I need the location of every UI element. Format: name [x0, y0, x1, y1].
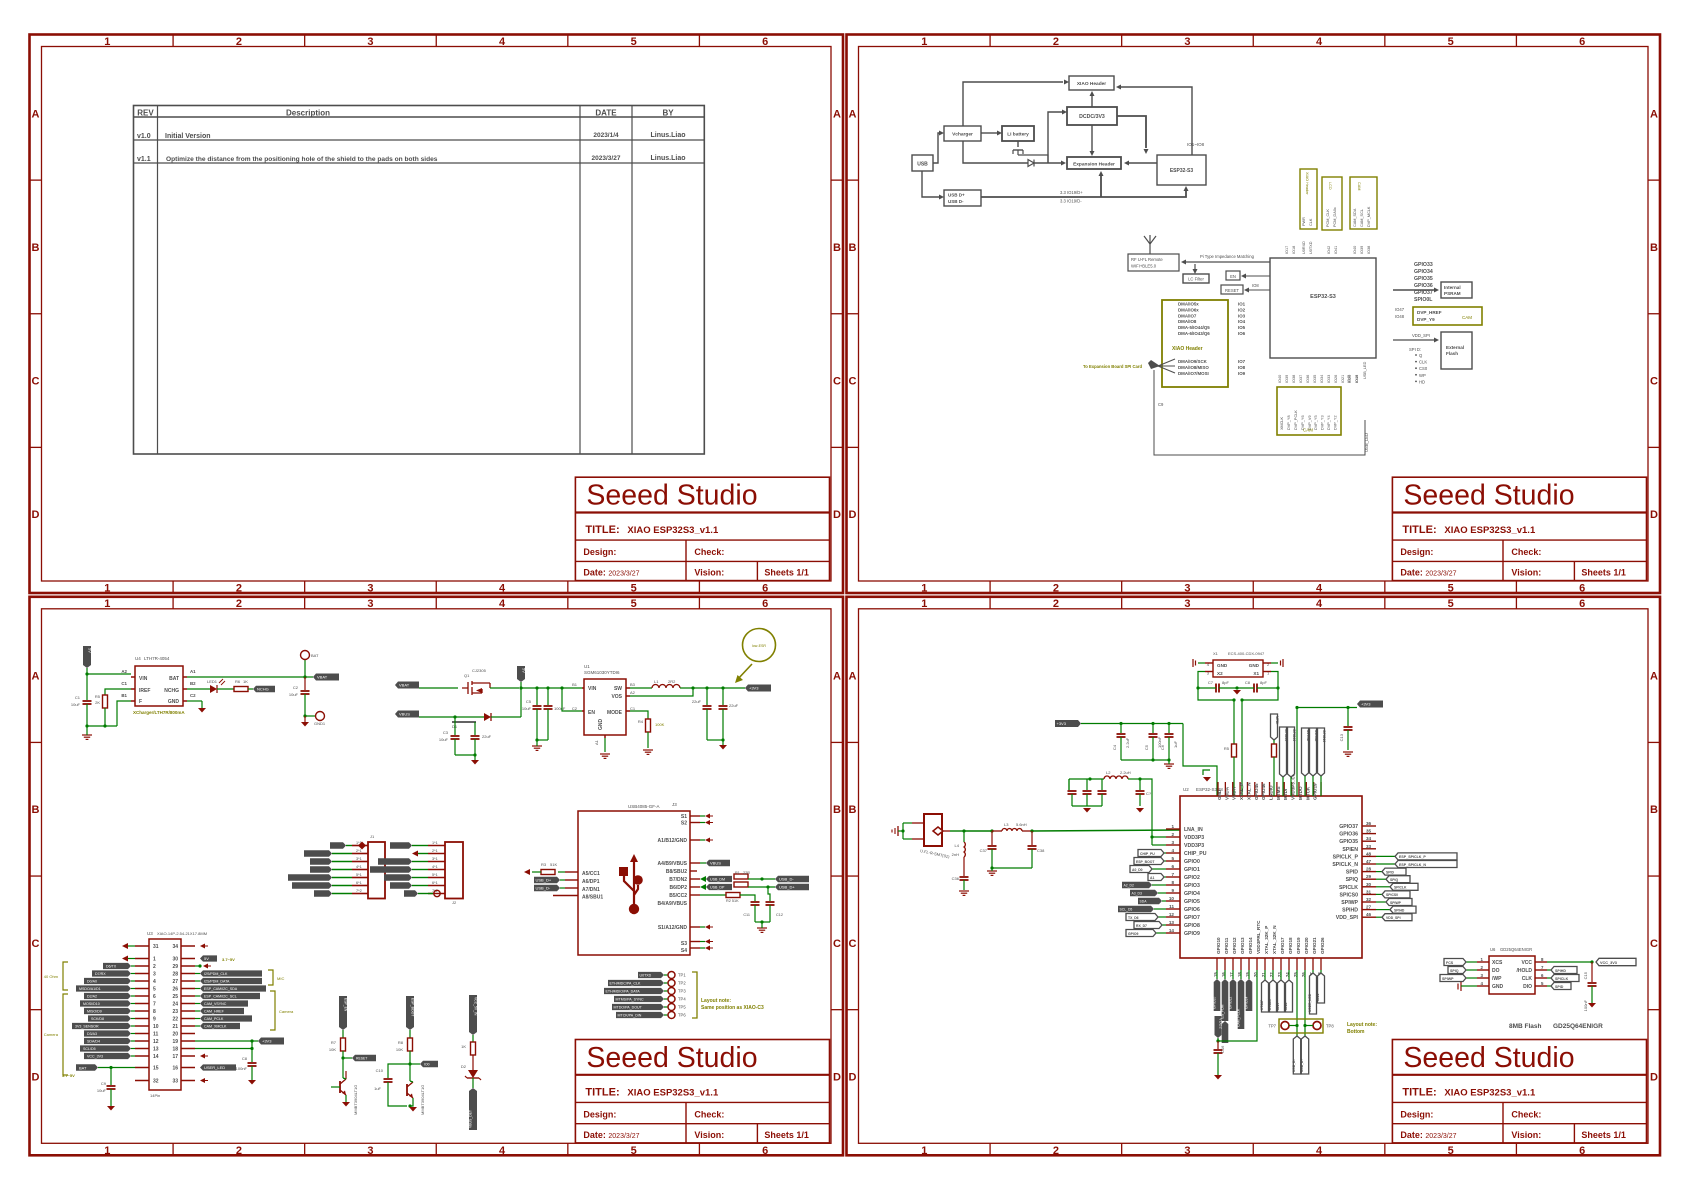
svg-text:DVP_PCLK: DVP_PCLK — [1294, 410, 1298, 430]
svg-text:XCS: XCS — [1492, 960, 1503, 966]
svg-text:GPIO9: GPIO9 — [1128, 932, 1138, 936]
svg-text:30: 30 — [172, 957, 178, 963]
svg-text:DMA/IO8: DMA/IO8 — [1178, 319, 1197, 324]
svg-text:SPI D:: SPI D: — [1409, 347, 1421, 352]
svg-text:5V: 5V — [522, 668, 527, 673]
svg-text:USB_D-: USB_D- — [779, 877, 794, 882]
svg-text:SDA: SDA — [1140, 900, 1148, 904]
svg-text:35: 35 — [1366, 829, 1372, 834]
svg-text:SGM61030YTDI6: SGM61030YTDI6 — [584, 670, 620, 675]
svg-text:13: 13 — [1169, 920, 1175, 925]
svg-text:XT32P: XT32P — [1260, 999, 1264, 1010]
svg-text:L4: L4 — [955, 843, 960, 848]
svg-text:RESET: RESET — [356, 1057, 367, 1061]
svg-text:GPIO19: GPIO19 — [1296, 937, 1301, 954]
svg-text:CS0: CS0 — [1419, 366, 1428, 371]
svg-text:33: 33 — [172, 1079, 178, 1085]
svg-text:GPIO36: GPIO36 — [1339, 832, 1358, 838]
svg-text:31: 31 — [153, 944, 159, 950]
svg-text:CAM_HREF: CAM_HREF — [204, 1010, 225, 1014]
svg-text:GPIO37: GPIO37 — [1414, 290, 1433, 296]
svg-text:VDDA: VDDA — [1224, 786, 1229, 800]
svg-text:5.6nH: 5.6nH — [1016, 822, 1027, 827]
svg-text:8MB Flash: 8MB Flash — [1509, 1023, 1542, 1030]
svg-text:3: 3 — [1171, 840, 1174, 845]
svg-text:GPIO3: GPIO3 — [1184, 883, 1200, 889]
svg-text:J3: J3 — [672, 802, 677, 807]
svg-text:X1: X1 — [1253, 671, 1259, 676]
svg-text:A1: A1 — [594, 739, 599, 745]
svg-text:CHIP_PU: CHIP_PU — [1184, 851, 1207, 857]
svg-text:GND: GND — [1249, 663, 1260, 668]
svg-text:GPIO46: GPIO46 — [1261, 783, 1266, 800]
svg-text:DVP_Y2: DVP_Y2 — [1334, 415, 1338, 430]
svg-text:SPID: SPID — [1346, 870, 1358, 876]
svg-text:46: 46 — [1366, 912, 1372, 917]
svg-text:GPIO1: GPIO1 — [1184, 867, 1200, 873]
svg-text:EN: EN — [1230, 274, 1236, 279]
svg-text:TP3: TP3 — [678, 989, 686, 994]
svg-text:VCC: VCC — [1521, 960, 1532, 966]
svg-text:D2/A2: D2/A2 — [87, 995, 97, 999]
svg-text:34: 34 — [172, 944, 178, 950]
svg-text:A1/B12/GND: A1/B12/GND — [658, 838, 688, 844]
svg-text:RX_D7: RX_D7 — [1136, 924, 1147, 928]
svg-text:XTAL_32K_N: XTAL_32K_N — [1272, 925, 1277, 954]
svg-text:VDD2: VDD2 — [1219, 1018, 1224, 1029]
svg-text:NCHG: NCHG — [164, 688, 179, 694]
svg-text:SW: SW — [614, 686, 622, 692]
svg-text:A6/DP1: A6/DP1 — [582, 879, 600, 885]
svg-text:10uF: 10uF — [71, 702, 81, 707]
svg-text:C?: C? — [1146, 791, 1152, 796]
svg-text:MODE: MODE — [607, 710, 623, 716]
svg-text:CAM_PCLK: CAM_PCLK — [1237, 1008, 1241, 1027]
svg-text:MISO/D9: MISO/D9 — [87, 1010, 102, 1014]
svg-text:CAM_VSYNC: CAM_VSYNC — [204, 1002, 227, 1006]
svg-text:2*1: 2*1 — [356, 849, 362, 853]
svg-text:1K: 1K — [243, 679, 248, 684]
svg-text:DMA/IO6x: DMA/IO6x — [1178, 307, 1199, 312]
svg-text:VBAT: VBAT — [317, 675, 328, 680]
svg-text:C1: C1 — [630, 706, 636, 711]
svg-text:47: 47 — [1366, 859, 1372, 864]
svg-text:22uF: 22uF — [482, 734, 492, 739]
svg-text:DVP_Y9: DVP_Y9 — [1417, 317, 1435, 322]
svg-text:SPICLK_P: SPICLK_P — [1333, 854, 1359, 860]
svg-text:GPIO35: GPIO35 — [1414, 276, 1433, 282]
svg-text:S1/A12/GND: S1/A12/GND — [658, 925, 688, 931]
svg-text:33: 33 — [1366, 844, 1372, 849]
svg-text:Camera: Camera — [44, 1032, 59, 1037]
svg-text:R6: R6 — [235, 679, 241, 684]
svg-text:BAT: BAT — [79, 1066, 87, 1071]
svg-text:SPID: SPID — [1386, 870, 1394, 874]
svg-text:DVP_Y8: DVP_Y8 — [1287, 415, 1291, 430]
svg-text:13: 13 — [153, 1047, 159, 1053]
svg-text:USB D+: USB D+ — [948, 193, 965, 198]
svg-text:GPIO45: GPIO45 — [1254, 783, 1259, 800]
svg-text:USB4085-GF-A: USB4085-GF-A — [628, 804, 660, 809]
svg-text:Internal: Internal — [1444, 285, 1461, 290]
svg-text:U1: U1 — [584, 664, 590, 669]
svg-text:XMCLK: XMCLK — [1280, 416, 1284, 430]
svg-text:100nF: 100nF — [554, 706, 566, 711]
svg-text:10: 10 — [1169, 896, 1175, 901]
svg-text:IO18: IO18 — [1292, 246, 1296, 254]
svg-text:U.FL-R-SMT(01): U.FL-R-SMT(01) — [920, 848, 951, 859]
svg-text:SPICLK_N: SPICLK_N — [1332, 862, 1358, 868]
svg-text:S3: S3 — [681, 941, 687, 947]
svg-text:GPIO21: GPIO21 — [1312, 937, 1317, 954]
svg-text:3*1: 3*1 — [356, 857, 362, 861]
svg-text:40 Ohm: 40 Ohm — [44, 974, 59, 979]
svg-text:ESP_CAM/I2C_SDA: ESP_CAM/I2C_SDA — [204, 987, 238, 991]
svg-text:VDDA: VDDA — [1232, 786, 1237, 800]
svg-text:U2: U2 — [1183, 787, 1189, 792]
svg-text:CLK: CLK — [1522, 976, 1533, 982]
svg-text:USB_D-: USB_D- — [536, 886, 551, 891]
svg-text:B7/DN2: B7/DN2 — [669, 877, 687, 883]
svg-text:IREF: IREF — [139, 688, 150, 694]
svg-text:NCHG: NCHG — [257, 687, 269, 692]
svg-text:B5/CC2: B5/CC2 — [669, 893, 687, 899]
svg-text:9: 9 — [1171, 888, 1174, 893]
svg-text:GPIO11: GPIO11 — [1224, 937, 1229, 954]
svg-text:C2: C2 — [293, 685, 299, 690]
svg-text:MSDO/A1/D1: MSDO/A1/D1 — [79, 987, 101, 991]
svg-text:A3_D3: A3_D3 — [1132, 892, 1142, 896]
svg-text:GPIO6: GPIO6 — [1184, 907, 1200, 913]
svg-text:GPIO7: GPIO7 — [1184, 915, 1200, 921]
svg-text:VDD_SPI: VDD_SPI — [1412, 333, 1430, 338]
svg-text:IO40: IO40 — [1278, 375, 1282, 383]
svg-text:DMA/IO8/MISO: DMA/IO8/MISO — [1178, 365, 1209, 370]
svg-text:IO17: IO17 — [1276, 1003, 1280, 1010]
svg-text:7: 7 — [1541, 965, 1544, 970]
svg-text:5: 5 — [153, 987, 156, 993]
svg-text:EN: EN — [588, 710, 595, 716]
svg-text:3*1: 3*1 — [432, 857, 438, 861]
svg-text:5V: 5V — [88, 648, 93, 653]
svg-text:1: 1 — [1171, 824, 1174, 829]
svg-text:LNA_IN: LNA_IN — [1184, 827, 1203, 833]
svg-text:Optimize the distance from the: Optimize the distance from the positioni… — [166, 156, 438, 163]
svg-text:C1: C1 — [75, 695, 81, 700]
svg-text:SPIHD: SPIHD — [1342, 908, 1358, 914]
svg-text:3.7~5V: 3.7~5V — [222, 957, 235, 962]
svg-text:MTCK/PA_DIN: MTCK/PA_DIN — [618, 1014, 642, 1018]
svg-text:VOS: VOS — [611, 694, 622, 700]
svg-text:IO33: IO33 — [1327, 375, 1331, 383]
svg-text:IO48: IO48 — [1395, 314, 1405, 319]
svg-text:ESP_SPICLK_N: ESP_SPICLK_N — [1399, 863, 1426, 867]
svg-text:SPIQ: SPIQ — [1390, 878, 1398, 882]
svg-text:TP2: TP2 — [678, 981, 686, 986]
svg-text:XT32N: XT32N — [1268, 999, 1272, 1010]
svg-text:CAM_XMCLK: CAM_XMCLK — [204, 1025, 227, 1029]
svg-text:DO: DO — [1492, 968, 1500, 974]
svg-text:/WP: /WP — [1492, 976, 1502, 982]
svg-text:6: 6 — [1541, 973, 1544, 978]
svg-text:IO9: IO9 — [1238, 371, 1246, 376]
svg-text:DVP_HREF: DVP_HREF — [1417, 310, 1442, 315]
svg-text:GPIO2: GPIO2 — [1184, 875, 1200, 881]
svg-text:IO41: IO41 — [1334, 246, 1338, 254]
svg-text:+3V3: +3V3 — [262, 1039, 272, 1044]
svg-text:TX_D6: TX_D6 — [1128, 916, 1139, 920]
svg-text:MTDO: MTDO — [1298, 786, 1303, 800]
svg-text:DVP_Y3: DVP_Y3 — [1321, 415, 1325, 430]
svg-text:BY: BY — [662, 109, 674, 118]
svg-text:TP5: TP5 — [678, 1005, 686, 1010]
svg-text:R5: R5 — [1224, 746, 1230, 751]
svg-text:2.2uF: 2.2uF — [1125, 737, 1130, 748]
svg-text:MIC: MIC — [277, 976, 284, 981]
svg-text:SPIHD: SPIHD — [1394, 908, 1405, 912]
svg-text:USB D-: USB D- — [948, 199, 964, 204]
svg-text:USB_DP: USB_DP — [710, 886, 725, 890]
svg-text:CAM_SDA: CAM_SDA — [1353, 208, 1357, 227]
svg-text:SPIWP: SPIWP — [1341, 900, 1358, 906]
svg-text:R3: R3 — [541, 862, 547, 867]
svg-text:J1: J1 — [370, 834, 375, 839]
svg-text:4: 4 — [153, 979, 156, 985]
svg-text:VCC_3V3: VCC_3V3 — [1600, 961, 1617, 965]
svg-text:3.3 IO19/D-: 3.3 IO19/D- — [1060, 199, 1082, 204]
svg-text:C13: C13 — [1339, 733, 1344, 741]
svg-text:F: F — [139, 699, 142, 705]
svg-text:ESP32-S3: ESP32-S3 — [1310, 294, 1336, 300]
svg-text:ETH/MDIO/PA_DATA: ETH/MDIO/PA_DATA — [606, 990, 641, 994]
svg-text:LI battery: LI battery — [1007, 132, 1029, 138]
svg-text:B1: B1 — [572, 682, 578, 687]
svg-text:B8/SBU2: B8/SBU2 — [666, 869, 687, 875]
svg-text:VIN: VIN — [588, 686, 597, 692]
svg-text:GPIO17: GPIO17 — [1280, 937, 1285, 954]
svg-text:IO46: IO46 — [1355, 375, 1359, 383]
svg-text:IO39: IO39 — [1285, 375, 1289, 383]
svg-text:SPICLK: SPICLK — [1339, 885, 1358, 891]
svg-text:A2: A2 — [630, 690, 636, 695]
svg-text:C37: C37 — [980, 848, 988, 853]
svg-text:IO18: IO18 — [1284, 1003, 1288, 1010]
svg-text:D6/TX: D6/TX — [106, 965, 117, 969]
svg-text:IO47: IO47 — [1395, 307, 1405, 312]
svg-text:1: 1 — [153, 957, 156, 963]
svg-text:2: 2 — [1481, 965, 1484, 970]
svg-text:2023/3/27: 2023/3/27 — [592, 155, 621, 162]
svg-text:S1: S1 — [681, 814, 687, 820]
svg-text:IO0: IO0 — [424, 1063, 430, 1067]
svg-text:2K: 2K — [95, 700, 100, 705]
svg-text:IO7: IO7 — [1238, 359, 1246, 364]
svg-text:MTDI: MTDI — [1275, 716, 1279, 724]
svg-text:2: 2 — [153, 964, 156, 970]
svg-text:J2: J2 — [452, 900, 457, 905]
svg-text:48: 48 — [1366, 851, 1372, 856]
svg-text:3.7~5V: 3.7~5V — [62, 1073, 75, 1078]
svg-text:SPICLK: SPICLK — [1394, 886, 1407, 890]
svg-text:SPIO0L: SPIO0L — [1414, 297, 1433, 303]
svg-text:GND: GND — [598, 719, 604, 731]
svg-text:36: 36 — [1366, 821, 1372, 826]
svg-text:R1: R1 — [735, 871, 740, 875]
svg-text:A2_D2: A2_D2 — [1124, 884, 1134, 888]
svg-text:IO26: IO26 — [1334, 375, 1338, 383]
svg-text:6: 6 — [1171, 864, 1174, 869]
svg-text:Initial Version: Initial Version — [165, 133, 211, 140]
svg-text:IO3: IO3 — [1238, 313, 1246, 318]
svg-text:VBUS_DET: VBUS_DET — [469, 1110, 473, 1128]
svg-text:GPIO14: GPIO14 — [1245, 997, 1249, 1009]
svg-text:23: 23 — [172, 1009, 178, 1015]
svg-text:21: 21 — [172, 1024, 178, 1030]
svg-text:GPIO35: GPIO35 — [1339, 839, 1358, 845]
svg-text:32: 32 — [153, 1079, 159, 1085]
svg-text:C12: C12 — [776, 913, 783, 917]
svg-text:27: 27 — [172, 979, 178, 985]
svg-text:low-ESR: low-ESR — [752, 644, 766, 648]
svg-text:IO40: IO40 — [1353, 246, 1357, 254]
svg-text:B2: B2 — [190, 681, 196, 686]
svg-text:CHIP_PU: CHIP_PU — [1140, 852, 1155, 856]
svg-text:5: 5 — [1541, 981, 1544, 986]
svg-text:+3V3: +3V3 — [1361, 702, 1371, 707]
svg-text:IO39: IO39 — [1360, 246, 1364, 254]
svg-text:C5: C5 — [1144, 744, 1149, 750]
svg-text:7: 7 — [1171, 872, 1174, 877]
svg-text:R5: R5 — [95, 694, 101, 699]
svg-text:B6/DP2: B6/DP2 — [669, 885, 687, 891]
svg-text:B4/A9/VBUS: B4/A9/VBUS — [658, 901, 688, 907]
svg-text:XIAO Header: XIAO Header — [1305, 172, 1309, 195]
svg-text:TP8: TP8 — [1326, 1024, 1334, 1029]
svg-text:IO45: IO45 — [1347, 375, 1351, 383]
svg-text:26: 26 — [172, 987, 178, 993]
svg-text:GPIO33: GPIO33 — [1414, 262, 1433, 268]
svg-text:TP1: TP1 — [678, 973, 686, 978]
svg-text:Same position as XIAO-C3: Same position as XIAO-C3 — [701, 1005, 764, 1011]
svg-text:DCDC/3V3: DCDC/3V3 — [1079, 114, 1105, 120]
svg-text:USB_DM: USB_DM — [710, 878, 725, 882]
svg-text:LED1: LED1 — [207, 679, 218, 684]
svg-text:12: 12 — [153, 1039, 159, 1045]
svg-text:I2S/PDM_CLK: I2S/PDM_CLK — [204, 972, 228, 976]
svg-text:10K: 10K — [396, 1047, 403, 1052]
svg-text:GPIO26: GPIO26 — [1320, 937, 1325, 954]
svg-text:14: 14 — [153, 1054, 159, 1060]
svg-text:51K: 51K — [550, 862, 557, 867]
svg-text:5V: 5V — [204, 956, 209, 961]
svg-text:30: 30 — [1366, 882, 1372, 887]
svg-text:3V3_SENSOR: 3V3_SENSOR — [75, 1025, 99, 1029]
svg-text:RF U-FL Remote: RF U-FL Remote — [1131, 257, 1163, 262]
svg-text:USER_LED: USER_LED — [204, 1065, 225, 1070]
svg-text:16: 16 — [172, 1066, 178, 1072]
svg-text:22uF: 22uF — [692, 699, 702, 704]
svg-text:X1: X1 — [1213, 651, 1219, 656]
svg-text:DMA-6/IO43/Q6: DMA-6/IO43/Q6 — [1178, 331, 1210, 336]
svg-text:IO38: IO38 — [1367, 246, 1371, 254]
svg-text:IO17: IO17 — [1285, 246, 1289, 254]
svg-text:IO21: IO21 — [1341, 375, 1345, 383]
svg-text:D7/RX: D7/RX — [95, 972, 106, 976]
svg-text:/HOLD: /HOLD — [1516, 968, 1532, 974]
svg-text:C9: C9 — [101, 1081, 107, 1086]
svg-text:External: External — [1446, 345, 1464, 350]
svg-text:C5: C5 — [526, 699, 532, 704]
svg-text:19: 19 — [172, 1039, 178, 1045]
svg-text:U3: U3 — [147, 931, 153, 936]
svg-text:IO42: IO42 — [1327, 246, 1331, 254]
svg-text:1K: 1K — [461, 1044, 466, 1049]
svg-text:Q: Q — [1419, 353, 1423, 358]
svg-text:8pF: 8pF — [1260, 680, 1267, 685]
svg-text:DMA/IO7: DMA/IO7 — [1178, 313, 1197, 318]
svg-text:U6: U6 — [1490, 947, 1496, 952]
svg-text:C2: C2 — [572, 706, 578, 711]
svg-text:L2: L2 — [1106, 770, 1111, 775]
svg-text:GND: GND — [168, 699, 180, 705]
svg-text:VDD3P3: VDD3P3 — [1184, 835, 1204, 841]
svg-text:MTDO/PA_DOUT: MTDO/PA_DOUT — [614, 1006, 643, 1010]
svg-text:XIAO Header: XIAO Header — [1077, 81, 1106, 87]
svg-text:USB_D+: USB_D+ — [779, 885, 795, 890]
svg-text:WIFI+BLE5.0: WIFI+BLE5.0 — [1131, 264, 1157, 269]
svg-text:C36: C36 — [952, 876, 960, 881]
svg-text:VBAT: VBAT — [399, 683, 410, 688]
svg-text:REV: REV — [137, 109, 154, 118]
svg-text:34: 34 — [1366, 836, 1372, 841]
svg-text:R2 51K: R2 51K — [726, 899, 739, 903]
svg-text:IO21: IO21 — [1316, 994, 1320, 1001]
svg-text:2*1: 2*1 — [432, 849, 438, 853]
svg-text:10uF: 10uF — [97, 1088, 107, 1093]
svg-text:10: 10 — [153, 1024, 159, 1030]
svg-text:22: 22 — [172, 1017, 178, 1023]
svg-text:DATE: DATE — [595, 109, 617, 118]
svg-text:GD25Q64ENIGR: GD25Q64ENIGR — [1553, 1023, 1603, 1030]
svg-text:R4: R4 — [638, 719, 644, 724]
svg-text:GPIO8: GPIO8 — [1184, 923, 1200, 929]
svg-text:GPIO20: GPIO20 — [1304, 937, 1309, 954]
svg-text:A1: A1 — [190, 669, 196, 674]
svg-text:Layout note:: Layout note: — [1347, 1022, 1377, 1028]
svg-text:PCM_CLK: PCM_CLK — [1326, 209, 1330, 227]
svg-text:USER_LED: USER_LED — [1308, 993, 1312, 1012]
svg-text:XCharger/LTH7R/800mA: XCharger/LTH7R/800mA — [133, 710, 185, 715]
svg-text:28: 28 — [1366, 867, 1372, 872]
svg-text:1uF: 1uF — [1173, 741, 1178, 748]
svg-text:GPIO13: GPIO13 — [1240, 937, 1245, 954]
svg-text:22R: 22R — [743, 871, 750, 875]
svg-text:VBUS: VBUS — [399, 712, 410, 717]
svg-text:MTCK: MTCK — [1305, 786, 1310, 800]
svg-text:SPIEN: SPIEN — [1342, 847, 1358, 853]
svg-text:HD: HD — [1419, 379, 1425, 384]
svg-text:TP4: TP4 — [678, 997, 686, 1002]
svg-text:U0TXD: U0TXD — [640, 974, 652, 978]
svg-text:IO34: IO34 — [1320, 375, 1324, 383]
svg-text:6: 6 — [153, 994, 156, 1000]
svg-text:VIN: VIN — [139, 676, 148, 682]
svg-text:22uF: 22uF — [729, 703, 739, 708]
svg-text:DMA/IO5x: DMA/IO5x — [1178, 302, 1199, 307]
svg-text:29: 29 — [1366, 874, 1372, 879]
svg-text:S4: S4 — [681, 948, 687, 954]
svg-text:3: 3 — [1481, 973, 1484, 978]
